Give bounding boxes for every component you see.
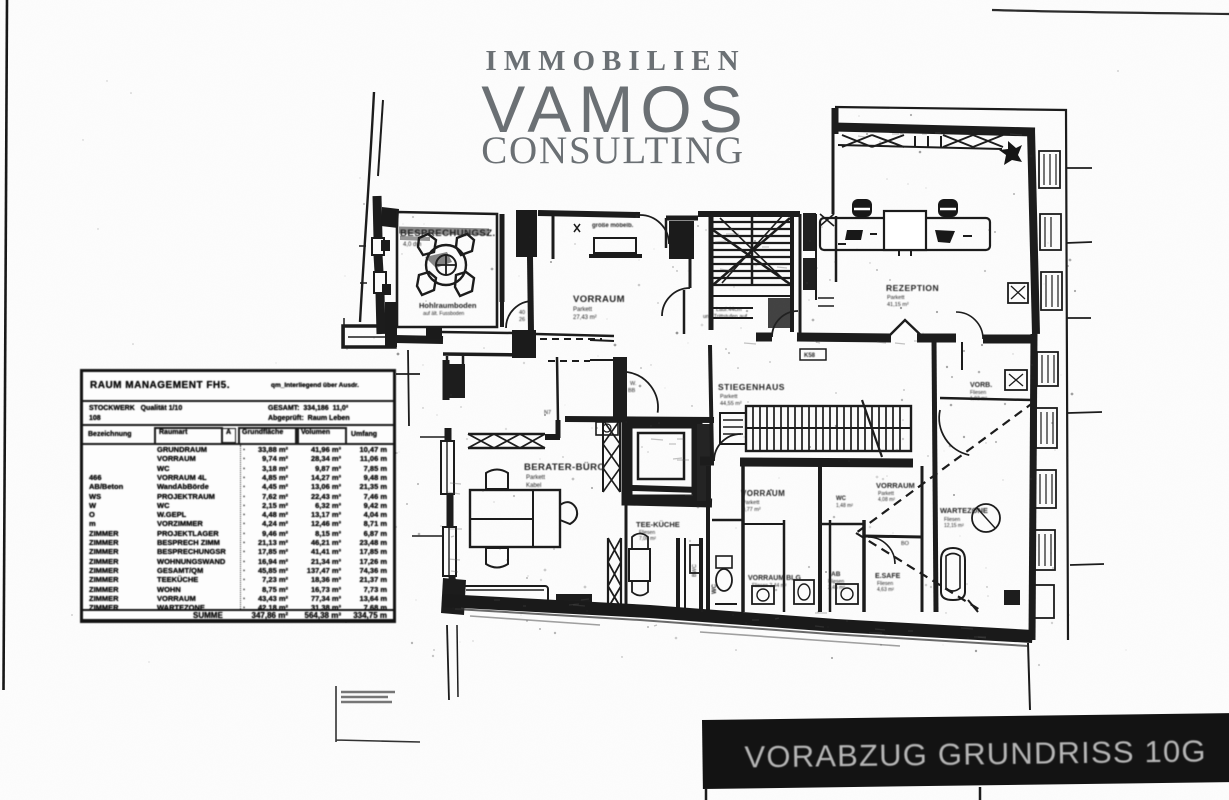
svg-text:WARTEZONE: WARTEZONE: [940, 506, 988, 515]
svg-text:40: 40: [519, 310, 525, 316]
svg-text:VORRAUM: VORRAUM: [876, 481, 915, 490]
svg-text:STIEGENHAUS: STIEGENHAUS: [718, 382, 785, 392]
svg-text:Parkett: Parkett: [573, 307, 592, 313]
svg-text:WC: WC: [836, 496, 847, 502]
svg-text:auf ält. Fussboden: auf ält. Fussboden: [423, 311, 464, 317]
svg-text:K58: K58: [804, 353, 816, 359]
svg-text:44,55 m²: 44,55 m²: [720, 401, 742, 407]
svg-text:1,02 m²: 1,02 m²: [970, 396, 987, 402]
svg-text:VORB.: VORB.: [970, 382, 992, 389]
svg-text:BB: BB: [628, 388, 636, 394]
svg-text:4,08 m²: 4,08 m²: [878, 497, 895, 503]
svg-text:BO: BO: [901, 541, 910, 547]
svg-text:größe möbelb.: größe möbelb.: [592, 223, 634, 229]
svg-text:7,06 m²: 7,06 m²: [639, 536, 656, 542]
svg-text:Parkett: Parkett: [720, 394, 738, 400]
svg-text:AB: AB: [831, 571, 841, 578]
svg-text:E.SAFE: E.SAFE: [875, 573, 901, 580]
svg-text:26: 26: [519, 317, 525, 323]
svg-text:27,43 m²: 27,43 m²: [573, 315, 597, 321]
svg-text:Parkett: Parkett: [887, 295, 905, 301]
svg-text:2,45 m²: 2,45 m²: [828, 585, 845, 591]
svg-text:W.: W.: [630, 381, 637, 387]
svg-text:VORRAUM: VORRAUM: [741, 489, 785, 498]
svg-text:WC: WC: [712, 583, 718, 594]
svg-text:Fliesen 2,44 m²: Fliesen 2,44 m²: [752, 583, 787, 589]
svg-text:Kabel: Kabel: [526, 483, 541, 489]
svg-text:4,63 m²: 4,63 m²: [877, 587, 894, 593]
svg-text:12,15 m²: 12,15 m²: [944, 523, 964, 529]
svg-text:1,48 m²: 1,48 m²: [836, 503, 853, 509]
svg-text:41,15 m²: 41,15 m²: [887, 302, 909, 308]
svg-text:Lauf:44cm: Lauf:44cm: [716, 307, 742, 313]
svg-text:VORRAUM: VORRAUM: [573, 294, 625, 305]
svg-text:VORRAUM BLG: VORRAUM BLG: [748, 575, 801, 582]
svg-text:Hohlraumboden: Hohlraumboden: [419, 301, 477, 310]
svg-text:9,77 m²: 9,77 m²: [742, 507, 761, 513]
svg-text:und Trittstufen auf.: und Trittstufen auf.: [703, 314, 749, 320]
svg-text:REZEPTION: REZEPTION: [886, 283, 939, 293]
svg-text:TEE-KÜCHE: TEE-KÜCHE: [636, 520, 680, 529]
svg-text:BERATER-BÜRO: BERATER-BÜRO: [524, 462, 605, 473]
svg-text:BWC: BWC: [692, 564, 698, 577]
svg-text:BESPRECHUNGSZ.: BESPRECHUNGSZ.: [400, 228, 496, 239]
svg-text:Parkett: Parkett: [526, 475, 545, 481]
svg-text:4,0 dm: 4,0 dm: [403, 242, 421, 248]
